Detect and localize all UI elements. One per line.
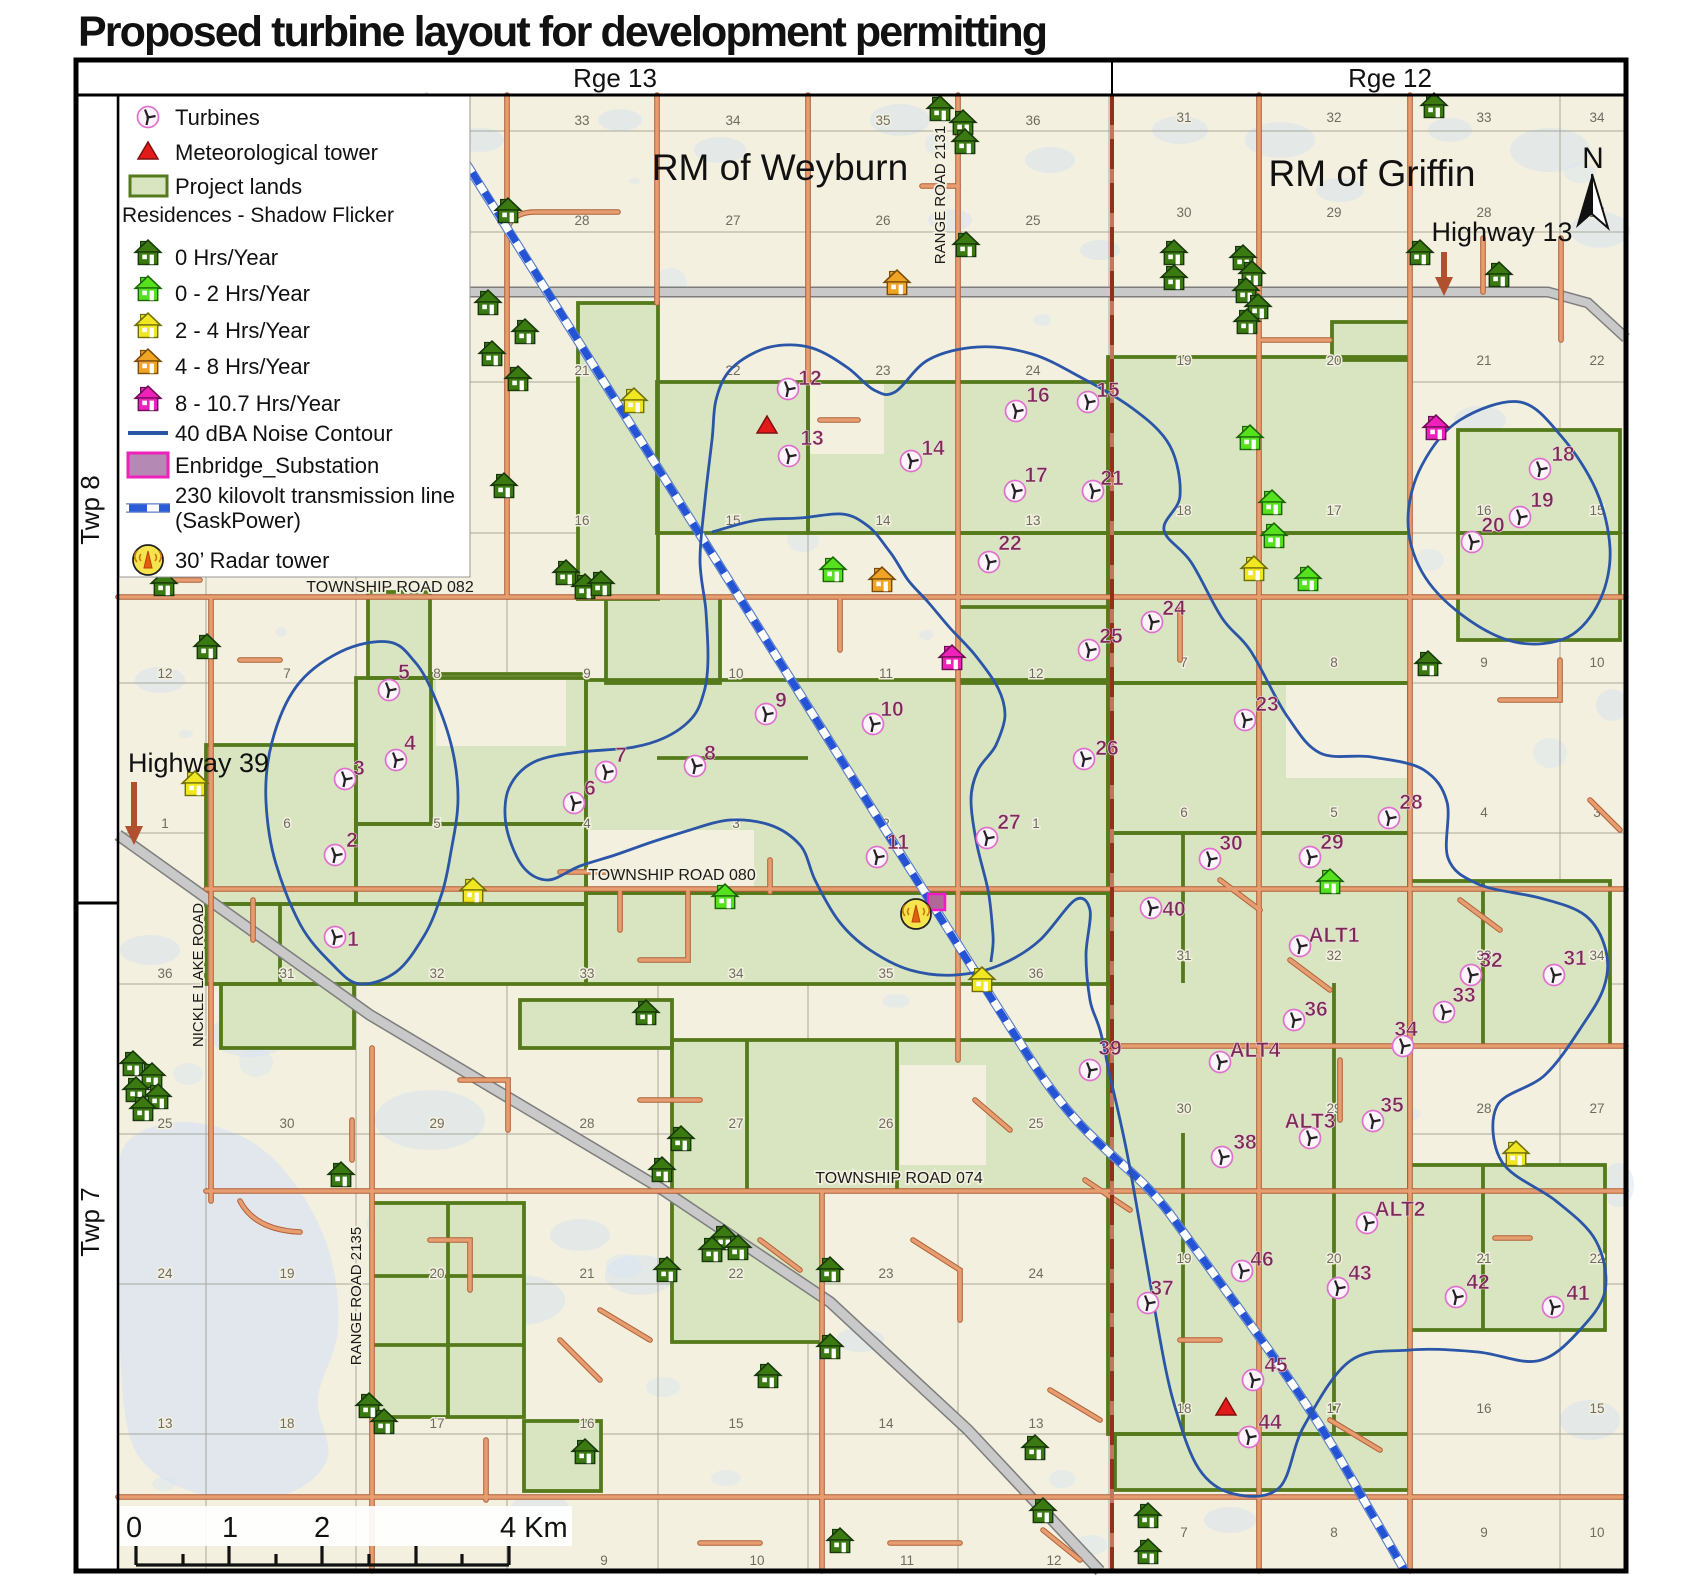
svg-text:12: 12 [798, 367, 821, 390]
svg-text:11: 11 [887, 831, 910, 854]
svg-text:33: 33 [579, 966, 594, 981]
svg-text:28: 28 [579, 1116, 594, 1131]
svg-text:TOWNSHIP ROAD 082: TOWNSHIP ROAD 082 [306, 579, 474, 596]
svg-text:24: 24 [157, 1266, 173, 1281]
svg-text:30’ Radar tower: 30’ Radar tower [175, 548, 329, 573]
svg-text:ALT3: ALT3 [1285, 1110, 1336, 1133]
svg-text:33: 33 [1476, 110, 1491, 125]
svg-text:35: 35 [878, 966, 893, 981]
svg-text:Project lands: Project lands [175, 174, 302, 199]
svg-text:23: 23 [1255, 693, 1278, 716]
svg-text:10: 10 [1589, 1525, 1604, 1540]
svg-text:8: 8 [704, 742, 716, 765]
svg-text:6: 6 [283, 816, 291, 831]
svg-text:31: 31 [1563, 947, 1587, 970]
svg-text:22: 22 [1589, 353, 1604, 368]
svg-text:30: 30 [1176, 1101, 1191, 1116]
svg-text:34: 34 [1394, 1018, 1418, 1041]
svg-text:16: 16 [574, 513, 589, 528]
svg-text:6: 6 [1180, 805, 1188, 820]
svg-text:30: 30 [279, 1116, 294, 1131]
svg-text:26: 26 [1095, 737, 1118, 760]
svg-text:28: 28 [1476, 1101, 1491, 1116]
svg-text:18: 18 [1176, 1401, 1191, 1416]
svg-text:18: 18 [1176, 503, 1191, 518]
svg-text:RM of Griffin: RM of Griffin [1269, 153, 1476, 194]
svg-text:16: 16 [579, 1416, 594, 1431]
svg-text:30: 30 [1176, 205, 1191, 220]
svg-text:45: 45 [1264, 1354, 1288, 1377]
svg-text:4: 4 [1480, 805, 1488, 820]
svg-text:20: 20 [1326, 353, 1341, 368]
svg-text:32: 32 [429, 966, 444, 981]
svg-text:Residences - Shadow Flicker: Residences - Shadow Flicker [122, 204, 394, 227]
svg-text:36: 36 [1025, 113, 1040, 128]
svg-text:3: 3 [353, 757, 365, 780]
svg-text:RANGE ROAD 2131: RANGE ROAD 2131 [932, 126, 949, 264]
svg-text:8: 8 [1330, 655, 1338, 670]
svg-text:1: 1 [161, 816, 169, 831]
svg-text:31: 31 [1176, 110, 1191, 125]
svg-text:19: 19 [1176, 1251, 1191, 1266]
svg-text:11: 11 [879, 666, 893, 681]
svg-text:0: 0 [126, 1512, 142, 1544]
svg-text:44: 44 [1258, 1411, 1282, 1434]
svg-text:33: 33 [1452, 984, 1475, 1007]
svg-text:40 dBA Noise Contour: 40 dBA Noise Contour [175, 421, 393, 446]
svg-text:41: 41 [1566, 1282, 1590, 1305]
svg-text:14: 14 [875, 513, 891, 528]
svg-text:5: 5 [398, 661, 410, 684]
svg-text:14: 14 [878, 1416, 894, 1431]
svg-text:8: 8 [433, 666, 441, 681]
svg-text:ALT2: ALT2 [1375, 1198, 1426, 1221]
svg-text:10: 10 [728, 666, 743, 681]
svg-text:3: 3 [732, 816, 740, 831]
svg-text:13: 13 [1025, 513, 1040, 528]
svg-text:6: 6 [584, 777, 596, 800]
svg-text:13: 13 [1028, 1416, 1043, 1431]
svg-text:34: 34 [1589, 110, 1605, 125]
svg-text:15: 15 [1589, 1401, 1604, 1416]
svg-text:2 - 4 Hrs/Year: 2 - 4 Hrs/Year [175, 318, 310, 343]
svg-text:21: 21 [579, 1266, 594, 1281]
svg-text:TOWNSHIP ROAD 080: TOWNSHIP ROAD 080 [588, 867, 756, 884]
svg-text:29: 29 [1320, 831, 1343, 854]
svg-text:27: 27 [725, 213, 740, 228]
svg-text:28: 28 [574, 213, 589, 228]
svg-text:10: 10 [749, 1553, 764, 1568]
svg-text:34: 34 [725, 113, 741, 128]
svg-text:9: 9 [583, 666, 591, 681]
svg-text:37: 37 [1150, 1277, 1173, 1300]
svg-text:TOWNSHIP ROAD 074: TOWNSHIP ROAD 074 [815, 1170, 983, 1187]
svg-text:23: 23 [875, 363, 890, 378]
svg-text:36: 36 [1028, 966, 1043, 981]
svg-text:17: 17 [1326, 503, 1341, 518]
svg-text:40: 40 [1162, 898, 1185, 921]
svg-text:14: 14 [921, 437, 945, 460]
svg-text:29: 29 [1326, 205, 1341, 220]
svg-text:Twp 8: Twp 8 [75, 475, 105, 544]
svg-text:20: 20 [1326, 1251, 1341, 1266]
svg-text:25: 25 [1099, 625, 1123, 648]
svg-text:34: 34 [1589, 948, 1605, 963]
svg-text:17: 17 [1024, 464, 1047, 487]
svg-text:10: 10 [880, 698, 903, 721]
svg-text:11: 11 [900, 1553, 914, 1568]
svg-text:1: 1 [222, 1512, 238, 1544]
svg-text:46: 46 [1250, 1248, 1273, 1271]
svg-text:20: 20 [1481, 514, 1504, 537]
svg-text:27: 27 [1589, 1101, 1604, 1116]
svg-text:RM of Weyburn: RM of Weyburn [652, 147, 908, 188]
svg-text:Meteorological tower: Meteorological tower [175, 140, 378, 165]
svg-text:27: 27 [728, 1116, 743, 1131]
svg-text:24: 24 [1028, 1266, 1044, 1281]
svg-text:32: 32 [1479, 949, 1502, 972]
svg-text:32: 32 [1326, 110, 1341, 125]
svg-text:8: 8 [1330, 1525, 1338, 1540]
svg-text:4: 4 [583, 816, 591, 831]
svg-text:9: 9 [1480, 1525, 1488, 1540]
svg-text:Twp 7: Twp 7 [75, 1187, 105, 1256]
svg-text:25: 25 [157, 1116, 172, 1131]
svg-text:2: 2 [346, 829, 358, 852]
svg-text:24: 24 [1162, 597, 1186, 620]
svg-text:29: 29 [429, 1116, 444, 1131]
svg-text:42: 42 [1466, 1271, 1489, 1294]
svg-text:19: 19 [279, 1266, 294, 1281]
svg-text:21: 21 [1100, 467, 1124, 490]
svg-text:4 - 8 Hrs/Year: 4 - 8 Hrs/Year [175, 354, 310, 379]
svg-text:0 - 2 Hrs/Year: 0 - 2 Hrs/Year [175, 281, 310, 306]
svg-text:35: 35 [1380, 1094, 1404, 1117]
svg-text:22: 22 [728, 1266, 743, 1281]
svg-text:33: 33 [574, 113, 589, 128]
svg-text:39: 39 [1098, 1037, 1121, 1060]
svg-text:7: 7 [283, 666, 291, 681]
svg-text:1: 1 [347, 928, 359, 951]
svg-text:25: 25 [1025, 213, 1040, 228]
svg-text:22: 22 [998, 532, 1021, 555]
svg-text:16: 16 [1026, 384, 1049, 407]
svg-text:21: 21 [1476, 1251, 1491, 1266]
svg-text:19: 19 [1530, 489, 1553, 512]
svg-text:ALT4: ALT4 [1230, 1039, 1281, 1062]
svg-text:10: 10 [1589, 655, 1604, 670]
svg-text:38: 38 [1233, 1131, 1257, 1154]
svg-text:5: 5 [433, 816, 441, 831]
svg-text:Rge 12: Rge 12 [1348, 63, 1432, 93]
svg-text:Highway 13: Highway 13 [1431, 217, 1572, 247]
svg-text:30: 30 [1219, 832, 1242, 855]
svg-text:8 - 10.7 Hrs/Year: 8 - 10.7 Hrs/Year [175, 391, 341, 416]
svg-text:(SaskPower): (SaskPower) [175, 508, 301, 533]
svg-text:27: 27 [997, 811, 1020, 834]
svg-text:9: 9 [775, 689, 787, 712]
svg-text:20: 20 [429, 1266, 444, 1281]
svg-text:15: 15 [728, 1416, 743, 1431]
svg-text:13: 13 [800, 427, 823, 450]
svg-text:NICKLE LAKE ROAD: NICKLE LAKE ROAD [190, 903, 207, 1047]
svg-text:21: 21 [574, 363, 589, 378]
svg-text:16: 16 [1476, 1401, 1491, 1416]
svg-text:12: 12 [1046, 1553, 1061, 1568]
svg-text:4: 4 [404, 732, 416, 755]
svg-text:15: 15 [1096, 379, 1120, 402]
svg-text:23: 23 [878, 1266, 893, 1281]
svg-text:43: 43 [1348, 1262, 1371, 1285]
svg-text:18: 18 [279, 1416, 294, 1431]
svg-text:31: 31 [1176, 948, 1191, 963]
svg-text:17: 17 [1326, 1401, 1341, 1416]
svg-text:7: 7 [615, 744, 627, 767]
svg-text:Enbridge_Substation: Enbridge_Substation [175, 453, 379, 478]
svg-text:230 kilovolt transmission line: 230 kilovolt transmission line [175, 483, 455, 508]
svg-text:26: 26 [878, 1116, 893, 1131]
svg-text:12: 12 [1028, 666, 1043, 681]
svg-text:19: 19 [1176, 353, 1191, 368]
svg-text:25: 25 [1028, 1116, 1043, 1131]
svg-text:36: 36 [157, 966, 172, 981]
svg-text:17: 17 [429, 1416, 444, 1431]
svg-text:Turbines: Turbines [175, 105, 260, 130]
svg-text:18: 18 [1551, 443, 1575, 466]
svg-text:N: N [1582, 142, 1604, 175]
svg-text:36: 36 [1304, 998, 1327, 1021]
svg-text:35: 35 [875, 113, 890, 128]
svg-text:1: 1 [1032, 816, 1040, 831]
svg-text:26: 26 [875, 213, 890, 228]
svg-text:7: 7 [1180, 1525, 1188, 1540]
svg-text:32: 32 [1326, 948, 1341, 963]
svg-text:RANGE ROAD 2135: RANGE ROAD 2135 [348, 1227, 365, 1365]
svg-text:13: 13 [157, 1416, 172, 1431]
svg-text:9: 9 [600, 1553, 608, 1568]
svg-text:12: 12 [157, 666, 172, 681]
svg-text:2: 2 [314, 1512, 330, 1544]
svg-text:28: 28 [1399, 791, 1423, 814]
svg-text:24: 24 [1025, 363, 1041, 378]
svg-text:21: 21 [1476, 353, 1491, 368]
svg-text:ALT1: ALT1 [1309, 924, 1360, 947]
svg-text:31: 31 [279, 966, 294, 981]
svg-text:4 Km: 4 Km [500, 1512, 568, 1544]
svg-text:Rge 13: Rge 13 [573, 63, 657, 93]
svg-text:5: 5 [1330, 805, 1338, 820]
svg-text:34: 34 [728, 966, 744, 981]
svg-text:9: 9 [1480, 655, 1488, 670]
svg-text:0 Hrs/Year: 0 Hrs/Year [175, 245, 278, 270]
